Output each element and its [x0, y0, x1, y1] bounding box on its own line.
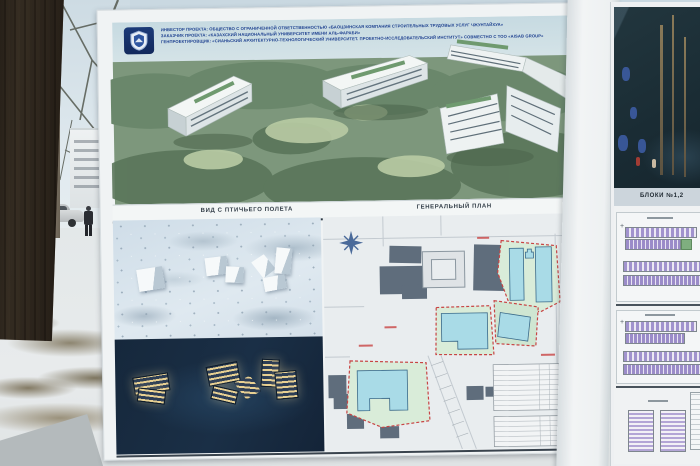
plan-indicators-table [493, 364, 560, 411]
caption-bird-view: ВИД С ПТИЧЬЕГО ПОЛЕТА [201, 206, 293, 214]
night-rendering [115, 336, 325, 454]
floor-plan-sheets: + + [614, 206, 700, 464]
caption-master-plan: ГЕНЕРАЛЬНЫЙ ПЛАН [417, 203, 492, 211]
project-billboard: ИНВЕСТОР ПРОЕКТА: ОБЩЕСТВО С ОГРАНИЧЕННО… [96, 2, 589, 461]
elevation-sheet [616, 392, 700, 458]
photo-of-construction-billboard: ИНВЕСТОР ПРОЕКТА: ОБЩЕСТВО С ОГРАНИЧЕННО… [0, 0, 700, 466]
elevation-drawing-2 [660, 410, 686, 452]
elevation-legend-table [690, 392, 700, 450]
university-crest-logo [124, 27, 154, 54]
night-entrance-rendering [614, 7, 700, 188]
side-billboard-blocks: БЛОКИ №1,2 + + [610, 2, 700, 466]
floor-plan-sheet-1: + [616, 212, 700, 302]
elevation-drawing-1 [628, 410, 654, 452]
crest-shield-icon [129, 30, 149, 51]
caption-blocks: БЛОКИ №1,2 [640, 192, 684, 199]
master-plan-drawing [323, 213, 577, 451]
floor-plan-sheet-2: + [616, 310, 700, 384]
plan-legend-table [494, 416, 560, 447]
side-caption-bar: БЛОКИ №1,2 [614, 188, 700, 207]
pedestrian [84, 206, 93, 236]
winter-rendering [113, 217, 323, 339]
